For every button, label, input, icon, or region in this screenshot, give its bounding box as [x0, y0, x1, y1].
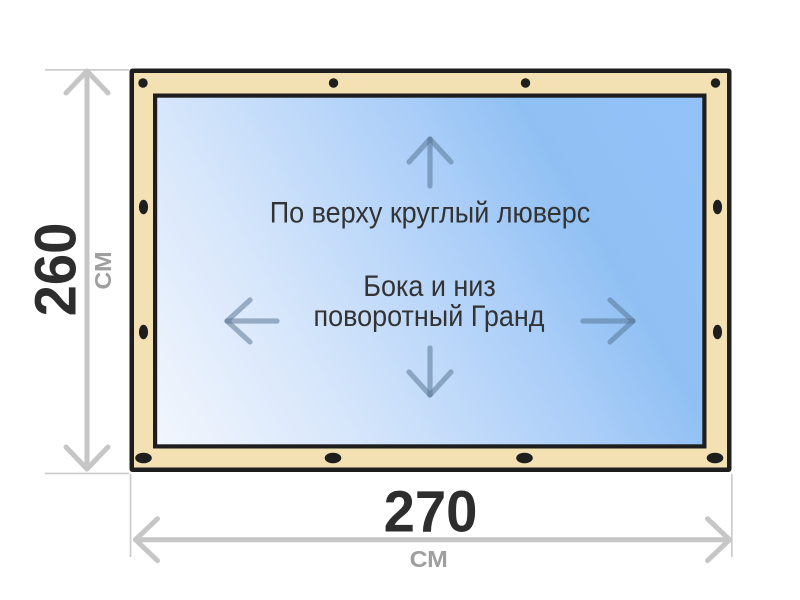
svg-text:Бока и низ: Бока и низ [363, 270, 496, 304]
svg-text:260: 260 [24, 223, 89, 317]
svg-text:270: 270 [384, 480, 478, 545]
svg-text:По верху круглый люверс: По верху круглый люверс [270, 196, 591, 230]
svg-text:СМ: СМ [91, 251, 117, 289]
svg-text:СМ: СМ [410, 547, 448, 573]
svg-text:поворотный Гранд: поворотный Гранд [313, 300, 544, 334]
